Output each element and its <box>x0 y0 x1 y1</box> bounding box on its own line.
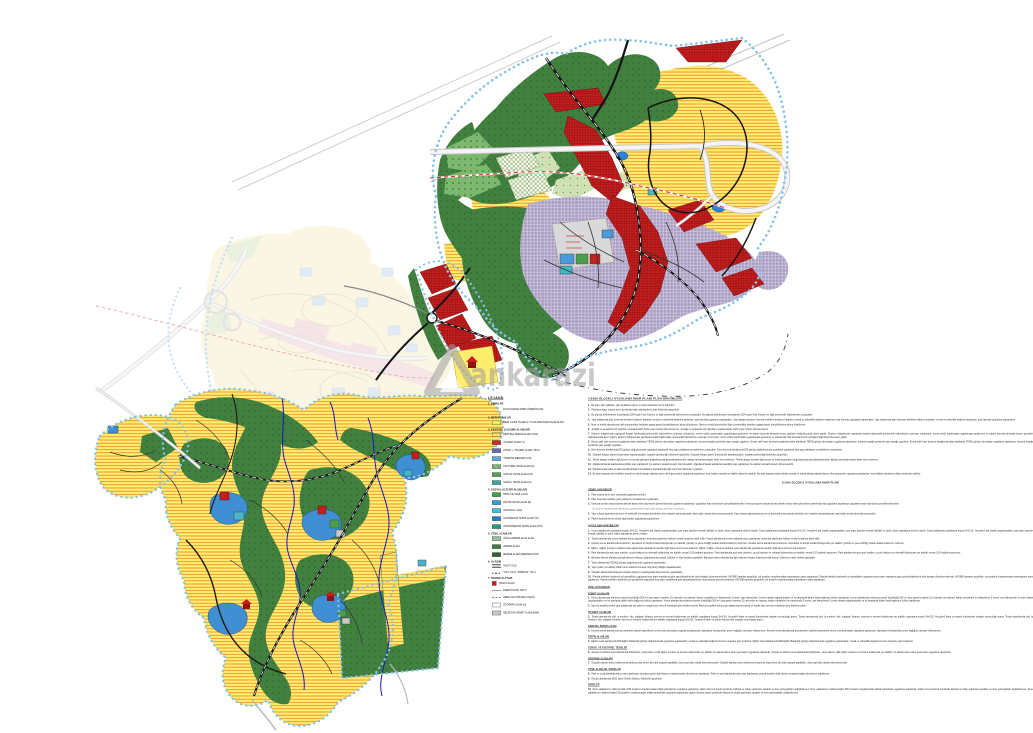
legend-title: LEJAND <box>488 396 584 400</box>
legend-swatch-red <box>492 440 501 444</box>
legend-item-label: KENTSEL SERVİS ALANI (KSA) <box>503 433 538 435</box>
legend-item-label: İLKÖĞRETİM TESİSİ ALANI (İÖ) <box>503 517 538 519</box>
plan-note-paragraph: 1.Konut adalarında yapılaşma koşulu E=0.… <box>588 529 1033 535</box>
legend-item-label: TRAFO ALANI <box>499 582 515 584</box>
plan-note-heading: OTOPARK ALANLARI <box>588 657 1033 660</box>
legend-section-heading: 7. TEKNİK ALTYAPI <box>488 577 584 580</box>
legend-swatch-redx <box>492 432 501 436</box>
plan-note-paragraph: 4.Eğitim, sağlık, sosyal ve kültürel tes… <box>588 547 1033 550</box>
legend-item-label: KÜLTÜREL TESİS ALANI (K) <box>503 465 534 467</box>
legend-item-label: ENERJİ NAKİL HATTI <box>503 590 526 592</box>
plan-note-paragraph: 8.Enerji nakil hattı koruma kuşağında ka… <box>588 440 1033 446</box>
plan-note-paragraph: 6.Belediye hizmet alanlarında ilgili ida… <box>588 556 1033 559</box>
plan-note-paragraph: 3.Bu planda belirtilmeyen hususlarda 319… <box>588 413 1033 416</box>
plan-note-heading: DERELER <box>588 683 1033 686</box>
legend-item-label: AĞAÇLANDIRILACAK ALAN <box>503 537 534 539</box>
plan-note-paragraph: 7.Otopark alanları kamu kullanımına ayrı… <box>588 661 1033 664</box>
watermark: ankarazi <box>428 348 596 394</box>
legend-item: TİCARET ALANI (T) <box>492 440 584 444</box>
legend-item: MERİ 1/1000 ÖLÇEKLİ UYGULAMA İMAR PLANI … <box>492 420 584 424</box>
legend-section-heading: 5. YEŞİL ALANLAR <box>488 532 584 535</box>
legend-item: TAŞIT YOLU <box>492 564 584 567</box>
plan-note-paragraph: 8.Park ve yeşil alanlarda kalıcı yapı ya… <box>588 672 1033 675</box>
legend-swatch-dgreen <box>492 552 501 556</box>
legend-swatch-ltblue <box>492 456 501 460</box>
legend-item: BELEDİYE HİZMET ALANI (BHA) <box>492 611 584 615</box>
legend-item: PARK VE YEŞİL ALAN <box>492 492 584 496</box>
plan-note-paragraph: 7.Trafo alanlarında TEDAŞ görüşü doğrult… <box>588 561 1033 564</box>
plan-note-paragraph: 1.Bu plan; plan paftaları, plan açıklama… <box>588 404 1033 407</box>
legend-item: DERE VE KORUMA KUŞAĞI <box>492 596 584 599</box>
legend-section: 4. SOSYAL ALTYAPI ALANLARIPARK VE YEŞİL … <box>488 488 584 528</box>
legend-item: MESİRE ALANI (REKREASYON) <box>492 552 584 556</box>
legend-item-label: PLAN ONAMA SINIRI (ÖNERİ PLAN) <box>503 408 543 410</box>
legend-item: EĞİTİM TESİSİ ALANI (E) <box>492 500 584 504</box>
plan-note-paragraph: 7.Deprem bölgelerinde yapılacak binalar … <box>588 432 1033 438</box>
plan-note-heading: KENTSEL SERVİS ALANI <box>588 625 1033 628</box>
legend-section-heading: 1. SINIRLAR <box>488 402 584 405</box>
plan-note-heading: YEŞİL ALANLAR / PARKLAR <box>588 668 1033 671</box>
legend-item-label: TAŞIT YOLU <box>503 565 517 567</box>
legend-section: 6. ULAŞIMTAŞIT YOLUYAYA YOLU / BİSİKLET … <box>488 560 584 573</box>
legend-item: OTOPARK ALANI (O) <box>492 603 584 607</box>
legend-item-label: TİCARET ALANI (T) <box>503 441 524 443</box>
legend-panel: LEJAND 1. SINIRLARPLAN ONAMA SINIRI (ÖNE… <box>488 396 584 666</box>
plan-note-paragraph: 13.Planlama alanında yer alan tescilli p… <box>588 468 1033 471</box>
legend-swatch-boundary <box>492 406 501 412</box>
plan-note-paragraph: 5.İfraz ve tevhid işlemlerinde ilgili yö… <box>588 423 1033 426</box>
plan-note-paragraph: 1.Plan onama sınırı aynı zamanda uygulam… <box>588 493 1033 496</box>
legend-item: ORMAN ALANI <box>492 544 584 548</box>
plan-note-paragraph: 3.Kentsel servis alanlarında showroom, d… <box>588 542 1033 545</box>
plan-note-paragraph: 10.Otopark ihtiyacı parsel bünyesinde ka… <box>588 453 1033 456</box>
plan-notes-panel: 1/1000 ÖLÇEKLİ UYGULAMA İMAR PLANI PLAN … <box>588 397 1033 703</box>
plan-note-paragraph: 6.Sosyal ve kültürel tesis alanlarında k… <box>588 651 1033 654</box>
plan-note-paragraph: 4.Kentsel servis alanlarında ana arterle… <box>588 629 1033 632</box>
plan-note-heading: TİCARET ALANLARI <box>588 611 1033 614</box>
legend-section: 1. SINIRLARPLAN ONAMA SINIRI (ÖNERİ PLAN… <box>488 402 584 412</box>
legend-item-label: BELEDİYE HİZMET ALANI (BHA) <box>503 612 539 614</box>
legend-item: YÖNETİM MERKEZİ (YM) <box>492 456 584 460</box>
plan-note-paragraph: 9.Dere koruma bantlarında DSİ görüşü doğ… <box>588 448 1033 451</box>
plan-note-paragraph: 5.Parsel bazında zemin etüdü yapılmadan … <box>588 517 1033 520</box>
legend-item-label: KONUT + TİCARET ALANI (TİCK) <box>503 449 539 451</box>
legend-swatch-roadsym <box>492 564 501 567</box>
plan-note-paragraph: Bu hüküm kapsamında yapılacak uygulamala… <box>593 507 1033 510</box>
legend-item: ANAOKULU (AO) <box>492 508 584 512</box>
legend-section-heading: 4. SOSYAL ALTYAPI ALANLARI <box>488 488 584 491</box>
legend-swatch-teal <box>492 480 501 484</box>
legend-swatch-hatchgreen <box>492 464 501 468</box>
legend-section: 3. KENTSEL ÇALIŞMA ALANLARIKENTSEL SERVİ… <box>488 428 584 484</box>
legend-item: SOSYAL TESİS ALANI (ST) <box>492 472 584 476</box>
plan-note-heading: UYGULAMA HÜKÜMLERİ <box>588 524 1033 527</box>
legend-section: 5. YEŞİL ALANLARAĞAÇLANDIRILACAK ALANORM… <box>488 532 584 556</box>
legend-swatch-dereline <box>492 596 501 599</box>
legend-item-label: YAYA YOLU / BİSİKLET YOLU <box>503 571 536 573</box>
plan-note-paragraph: 5.Eğitim tesisi alanlarında Milli Eğitim… <box>588 640 1033 643</box>
legend-item-label: ANAOKULU (AO) <box>503 509 522 511</box>
legend-item: TRAFO ALANI <box>492 581 584 585</box>
legend-swatch-powerline <box>492 589 501 592</box>
legend-swatch-indigo <box>492 448 501 452</box>
legend-item-label: OTOPARK ALANI (O) <box>503 604 526 606</box>
legend-swatch-tealgreen <box>492 524 501 528</box>
plan-note-heading: SOSYAL VE KÜLTÜREL TESİSLER <box>588 646 1033 649</box>
legend-item-label: DERE VE KORUMA KUŞAĞI <box>503 596 534 598</box>
legend-swatch-graybox <box>492 611 501 615</box>
legend-item: ENERJİ NAKİL HATTI <box>492 589 584 592</box>
legend-item: SAĞLIK TESİSİ ALANI (S) <box>492 480 584 484</box>
plan-note-paragraph: 11.Teknik altyapı tesisleri ilgili kurum… <box>588 458 1033 461</box>
plan-note-paragraph: 10.Planda belirtilen kademeli yol genişl… <box>588 575 1033 581</box>
plan-note-paragraph: 4.Yapı adalarında plan üzerinde belirtil… <box>588 418 1033 421</box>
legend-swatch-yellow <box>492 420 501 424</box>
legend-item: KONUT + TİCARET ALANI (TİCK) <box>492 448 584 452</box>
plan-note-paragraph: 2.Planlama alanı onama sınırı içerisinde… <box>588 408 1033 411</box>
legend-item: KÜLTÜREL TESİS ALANI (K) <box>492 464 584 468</box>
legend-section: 2. MERİ PLANLARMERİ 1/1000 ÖLÇEKLİ UYGUL… <box>488 416 584 424</box>
legend-item: İLKÖĞRETİM TESİSİ ALANI (İÖ) <box>492 516 584 520</box>
plan-note-paragraph: 10.Dere yataklarının ıslahına ilişkin DS… <box>588 688 1033 694</box>
plan-note-paragraph: 4.Yapı ruhsatı aşamasında çevre ve şehir… <box>588 512 1033 515</box>
legend-swatch-blue2 <box>492 516 501 520</box>
plan-note-paragraph: 1.Konut alanlarında minimum parsel büyük… <box>588 596 1033 602</box>
legend-item-label: PARK VE YEŞİL ALAN <box>503 493 527 495</box>
legend-swatch-cyan <box>492 508 501 512</box>
plan-note-paragraph: 5.Park alanlarında açık spor tesisleri, … <box>588 551 1033 554</box>
plan-note-paragraph: 14.Bu plan kapsamında belirtilen sosyal … <box>588 472 1033 475</box>
plan-note-heading: 1/1000 ÖLÇEKLİ UYGULAMA İMAR PLANI <box>588 481 1033 484</box>
legend-item: YAYA YOLU / BİSİKLET YOLU <box>492 571 584 573</box>
legend-item-label: ORMAN ALANI <box>503 545 519 547</box>
watermark-text: ankarazi <box>470 356 596 394</box>
legend-section-heading: 2. MERİ PLANLAR <box>488 416 584 419</box>
legend-item-label: MERİ 1/1000 ÖLÇEKLİ UYGULAMA İMAR PLANI … <box>503 421 564 423</box>
plan-note-paragraph: 8.Yaya yolları ve bisiklet yolları kamu … <box>588 566 1033 569</box>
legend-item-label: MESİRE ALANI (REKREASYON) <box>503 553 539 555</box>
legend-item-label: EĞİTİM TESİSİ ALANI (E) <box>503 501 531 503</box>
legend-item: ORTAÖĞRETİM TESİSİ ALANI (OÖ) <box>492 524 584 528</box>
plan-note-paragraph: 3.Ticaret alanlarında otel, iş merkezi, … <box>588 615 1033 621</box>
legend-swatch-lgreendot <box>492 536 501 540</box>
legend-swatch-roaddash <box>492 573 501 574</box>
plan-note-heading: EĞİTİM ALANLARI <box>588 635 1033 638</box>
legend-swatch-trafo <box>492 581 496 585</box>
plan-note-heading: GENEL HÜKÜMLER <box>588 488 1033 491</box>
legend-item-label: SAĞLIK TESİSİ ALANI (S) <box>503 481 531 483</box>
legend-item: KENTSEL SERVİS ALANI (KSA) <box>492 432 584 436</box>
legend-swatch-green <box>492 472 501 476</box>
legend-section: 7. TEKNİK ALTYAPITRAFO ALANIENERJİ NAKİL… <box>488 577 584 615</box>
plan-note-paragraph: 2.Ticaret alanlarında zemin katlarda kon… <box>588 537 1033 540</box>
legend-item: AĞAÇLANDIRILACAK ALAN <box>492 536 584 540</box>
plan-note-heading: ÖZEL HÜKÜMLER <box>588 586 1033 589</box>
plan-note-paragraph: 12.Ağaçlandırılacak alanlarda kesinlikle… <box>588 463 1033 466</box>
plan-note-paragraph: 9.Orman alanlarında 6831 sayılı Orman Ka… <box>588 677 1033 680</box>
legend-swatch-blue <box>492 500 501 504</box>
zoning-plan-sheet: ankarazi LEJAND 1. SINIRLARPLAN ONAMA SI… <box>0 0 1033 733</box>
legend-item: PLAN ONAMA SINIRI (ÖNERİ PLAN) <box>492 406 584 412</box>
plan-note-heading: KONUT ALANLARI <box>588 592 1033 595</box>
legend-swatch-park <box>492 492 501 496</box>
plan-note-paragraph: 9.Otopark alanlarında bölgesel otopark i… <box>588 571 1033 574</box>
plan-note-paragraph: 2.Plan üzerinde belirtilen yapı yaklaşma… <box>588 498 1033 501</box>
legend-item-label: ORTAÖĞRETİM TESİSİ ALANI (OÖ) <box>503 525 542 527</box>
legend-section-heading: 6. ULAŞIM <box>488 560 584 563</box>
plan-note-paragraph: 2.Mevcut teşekkül etmiş yapı adalarında … <box>588 604 1033 607</box>
plan-note-paragraph: 6.Jeolojik ve jeoteknik etüt raporları o… <box>588 428 1033 431</box>
legend-item-label: YÖNETİM MERKEZİ (YM) <box>503 457 531 459</box>
plan-note-paragraph: 3.Kamuya ayrılan sosyal donatı alanları … <box>588 502 1033 505</box>
plan-area-south <box>95 388 503 730</box>
legend-item-label: SOSYAL TESİS ALANI (ST) <box>503 473 533 475</box>
legend-section-heading: 3. KENTSEL ÇALIŞMA ALANLARI <box>488 428 584 431</box>
legend-swatch-forest <box>492 544 501 548</box>
plan-note-heading: 1/1000 ÖLÇEKLİ UYGULAMA İMAR PLANI PLAN … <box>588 397 1033 400</box>
legend-swatch-whitebox <box>492 603 501 607</box>
